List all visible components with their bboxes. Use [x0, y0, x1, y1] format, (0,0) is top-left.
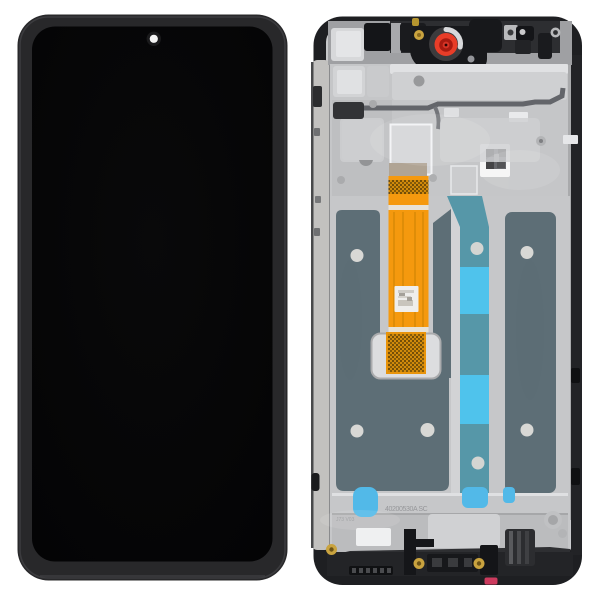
svg-text:40200530A SC: 40200530A SC — [385, 506, 428, 513]
